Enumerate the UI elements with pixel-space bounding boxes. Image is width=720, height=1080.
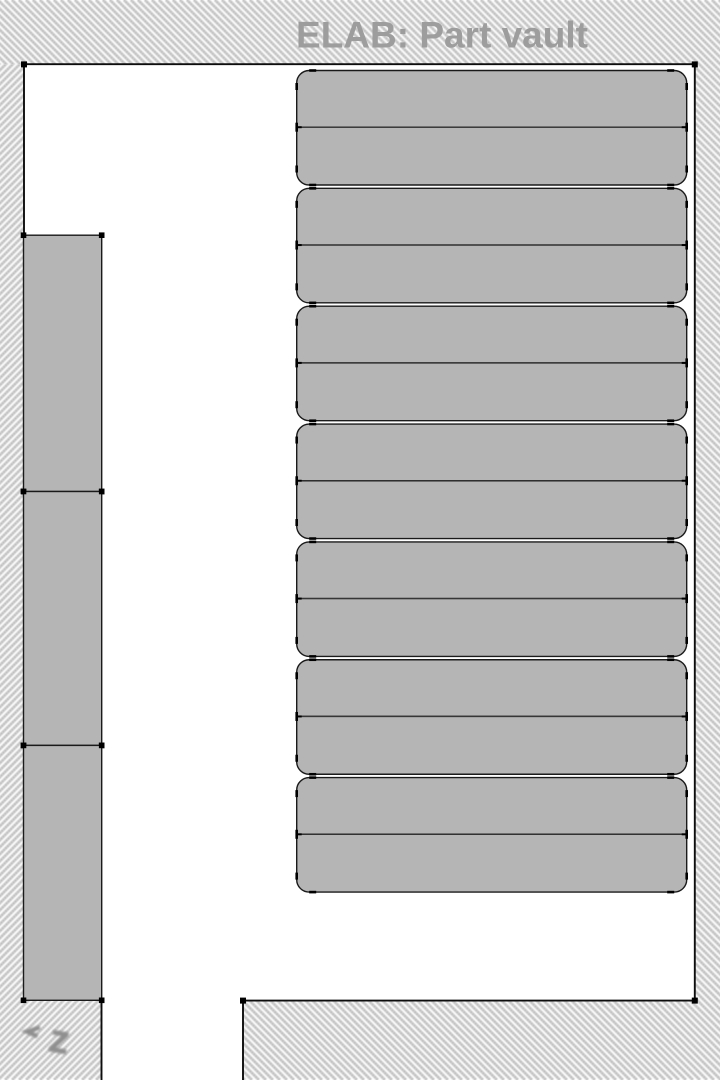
svg-text:ELAB: Part vault: ELAB: Part vault	[296, 15, 588, 56]
